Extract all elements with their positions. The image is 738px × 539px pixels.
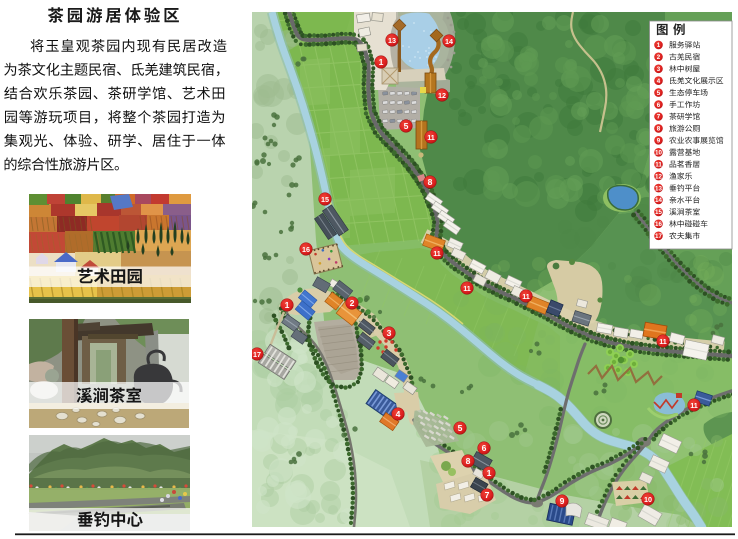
- svg-text:1: 1: [379, 57, 384, 67]
- svg-text:13: 13: [655, 185, 662, 192]
- svg-text:17: 17: [253, 350, 261, 359]
- svg-text:10: 10: [655, 150, 662, 157]
- svg-text:11: 11: [690, 401, 698, 410]
- svg-text:14: 14: [655, 197, 662, 204]
- svg-text:9: 9: [560, 496, 565, 506]
- svg-text:3: 3: [657, 66, 661, 73]
- svg-text:2: 2: [350, 298, 355, 308]
- svg-text:7: 7: [657, 114, 661, 121]
- svg-text:12: 12: [438, 91, 446, 100]
- svg-text:11: 11: [433, 249, 441, 258]
- svg-text:3: 3: [387, 328, 392, 338]
- svg-text:5: 5: [404, 121, 409, 131]
- svg-text:11: 11: [463, 284, 471, 293]
- svg-text:15: 15: [321, 195, 329, 204]
- svg-text:10: 10: [644, 495, 652, 504]
- svg-text:8: 8: [466, 456, 471, 466]
- svg-text:12: 12: [655, 173, 662, 180]
- svg-text:16: 16: [655, 221, 662, 228]
- svg-text:14: 14: [445, 37, 453, 46]
- svg-text:8: 8: [428, 177, 433, 187]
- svg-text:6: 6: [657, 102, 661, 109]
- svg-text:1: 1: [657, 42, 661, 49]
- svg-text:1: 1: [487, 468, 492, 478]
- svg-text:11: 11: [427, 133, 435, 142]
- svg-text:11: 11: [659, 337, 667, 346]
- svg-text:16: 16: [302, 245, 310, 254]
- svg-text:11: 11: [522, 292, 530, 301]
- svg-text:15: 15: [655, 209, 662, 216]
- svg-text:11: 11: [655, 161, 662, 168]
- svg-text:8: 8: [657, 126, 661, 133]
- svg-text:2: 2: [657, 54, 661, 61]
- svg-text:7: 7: [485, 490, 490, 500]
- svg-text:5: 5: [458, 423, 463, 433]
- svg-text:1: 1: [285, 300, 290, 310]
- svg-text:17: 17: [655, 233, 662, 240]
- svg-text:4: 4: [396, 409, 401, 419]
- svg-text:5: 5: [657, 90, 661, 97]
- svg-text:4: 4: [657, 78, 661, 85]
- svg-text:13: 13: [388, 36, 396, 45]
- svg-text:9: 9: [657, 138, 661, 145]
- svg-text:6: 6: [482, 443, 487, 453]
